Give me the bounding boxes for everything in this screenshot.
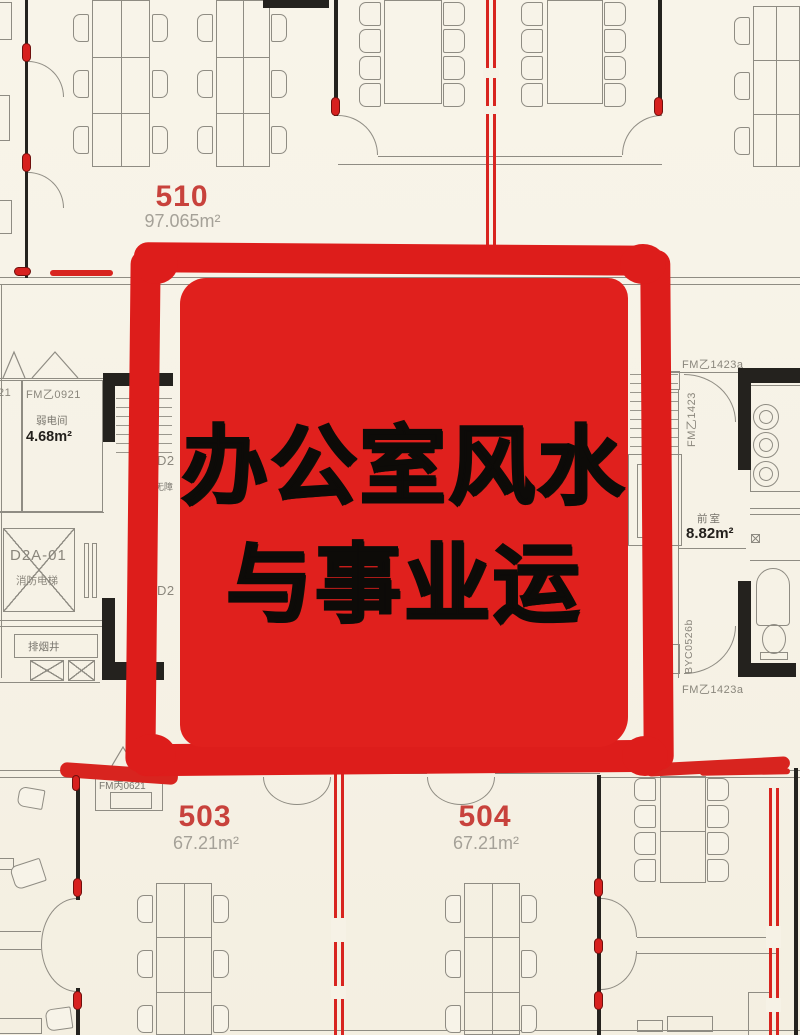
room-504-number: 504 [440, 800, 530, 834]
chair-icon [521, 1005, 537, 1033]
wall-line [378, 156, 622, 157]
chair-icon [707, 805, 729, 828]
urinal-icon [756, 568, 790, 626]
red-door-marker [22, 43, 31, 62]
chair-icon [521, 56, 543, 80]
basin-icon [759, 410, 773, 424]
stamp-border-left [125, 250, 160, 772]
chair-icon [443, 2, 465, 26]
desk-table [660, 776, 706, 883]
label-fm1423a-top: FM乙1423a [682, 356, 743, 372]
chair-icon [604, 29, 626, 53]
red-door-marker [73, 878, 82, 897]
wall-line [0, 626, 103, 627]
wall-line [0, 620, 103, 621]
door-arc [41, 898, 77, 945]
chair-icon [197, 70, 213, 98]
door-arc [297, 777, 331, 805]
chair-icon [359, 83, 381, 107]
red-brush-stroke [700, 768, 790, 776]
label-fm1423-side: FM乙1423 [683, 392, 699, 447]
chair-icon [521, 2, 543, 26]
chair-icon [16, 786, 45, 810]
plan-box [637, 1020, 663, 1032]
toilet-icon [762, 624, 786, 654]
room-510-area: 97.065m² [120, 211, 245, 232]
label-byc: BYC0526b [683, 619, 695, 674]
wall [658, 0, 662, 100]
label-elevator-name: 消防电梯 [16, 573, 58, 588]
room-503-number: 503 [160, 800, 250, 834]
door-arc [601, 898, 637, 937]
desk-table [384, 0, 442, 104]
wall-line [750, 508, 800, 509]
chair-icon [73, 126, 89, 154]
chair-icon [359, 29, 381, 53]
chair-icon [707, 832, 729, 855]
chair-icon [443, 56, 465, 80]
desk-line [243, 0, 244, 167]
chair-icon [604, 83, 626, 107]
chair-icon [445, 895, 461, 923]
chair-icon [521, 950, 537, 978]
plan-box [0, 1018, 42, 1034]
red-line-gap [766, 998, 781, 1012]
red-door-marker [331, 97, 340, 116]
desk-line [184, 883, 185, 1035]
red-line-gap [331, 918, 346, 942]
vent-symbol [30, 660, 64, 681]
room-503-area: 67.21m² [146, 833, 266, 854]
wall-line [750, 560, 800, 561]
chair-icon [271, 70, 287, 98]
plan-box [84, 543, 89, 598]
wall-line [0, 949, 41, 950]
plan-box [0, 200, 12, 234]
chair-icon [734, 127, 750, 155]
red-door-marker [73, 991, 82, 1010]
chair-icon [634, 778, 656, 801]
stamp-border-right [640, 250, 674, 770]
label-d2-upper: D2 [157, 453, 175, 468]
vent-symbol [68, 660, 95, 681]
door-arc [41, 945, 77, 992]
wall [263, 0, 329, 8]
door-triangle-icons [0, 348, 110, 380]
stamp-corner-blob [622, 736, 668, 776]
door-arc [263, 777, 297, 805]
label-smoke-shaft: 排烟井 [28, 639, 60, 654]
red-line-gap [483, 106, 499, 114]
door-arc [28, 61, 64, 97]
wall [738, 368, 751, 470]
label-fm1423a-bottom: FM乙1423a [682, 681, 743, 697]
red-traced-wall [486, 0, 496, 248]
chair-icon [137, 950, 153, 978]
chair-icon [359, 56, 381, 80]
red-line-gap [483, 68, 499, 78]
wall [25, 0, 28, 278]
wall-line [637, 953, 777, 954]
chair-icon [445, 1005, 461, 1033]
wall-line [678, 548, 746, 549]
stamp-title-line1: 办公室风水 [180, 412, 628, 522]
red-door-marker [654, 97, 663, 116]
chair-icon [73, 70, 89, 98]
door-arc [622, 115, 662, 155]
wall-line [750, 514, 800, 515]
plan-box [0, 380, 22, 512]
desk-line [776, 6, 777, 167]
label-weak-room: 弱电间 [36, 413, 68, 428]
chair-icon [604, 56, 626, 80]
elevator-shaft-symbol [3, 528, 75, 612]
chair-icon [445, 950, 461, 978]
wall [103, 373, 115, 442]
chair-icon [213, 1005, 229, 1033]
wall-line [495, 773, 600, 774]
red-door-marker [594, 878, 603, 897]
chair-icon [152, 126, 168, 154]
chair-icon [45, 1006, 74, 1031]
chair-icon [73, 14, 89, 42]
chair-icon [137, 895, 153, 923]
chair-icon [734, 17, 750, 45]
chair-icon [604, 2, 626, 26]
red-door-marker [14, 267, 31, 276]
chair-icon [734, 72, 750, 100]
chair-icon [137, 1005, 153, 1033]
label-fm0921: FM乙0921 [26, 386, 81, 402]
red-line-gap [766, 926, 781, 948]
label-partial-21: 21 [0, 387, 11, 399]
chair-icon [271, 126, 287, 154]
desk-table [547, 0, 603, 104]
wall-line [0, 931, 41, 932]
basin-icon [759, 438, 773, 452]
red-door-marker [594, 991, 603, 1010]
red-door-marker [22, 153, 31, 172]
chair-icon [213, 895, 229, 923]
door-arc [28, 172, 64, 208]
wall [738, 663, 796, 677]
wall [794, 768, 798, 1035]
stamp-border-top [134, 242, 662, 276]
chair-icon [359, 2, 381, 26]
red-wall-highlight [50, 270, 113, 276]
chair-icon [271, 14, 287, 42]
chair-icon [443, 83, 465, 107]
chair-icon [634, 859, 656, 882]
label-front-room: 前室 [697, 511, 722, 526]
basin-icon [759, 467, 773, 481]
plan-box [0, 2, 12, 40]
label-front-area: 8.82m² [686, 525, 734, 542]
wall-line [0, 682, 100, 683]
chair-icon [152, 14, 168, 42]
chair-icon [9, 858, 47, 891]
room-504-area: 67.21m² [426, 833, 546, 854]
plan-box [0, 95, 10, 141]
chair-icon [521, 29, 543, 53]
chair-icon [707, 778, 729, 801]
stamp-corner-blob [620, 244, 666, 284]
wall-line [0, 512, 104, 513]
wall-line [338, 164, 662, 165]
door-arc [338, 115, 378, 155]
plan-box [110, 792, 152, 809]
wall-line [637, 937, 777, 938]
desk-line [492, 883, 493, 1035]
plan-box [667, 1016, 713, 1032]
desk-line [121, 0, 122, 167]
label-elevator-id: D2A-01 [10, 547, 67, 564]
chair-icon [197, 126, 213, 154]
chair-icon [634, 832, 656, 855]
chair-icon [634, 805, 656, 828]
chair-icon [707, 859, 729, 882]
chair-icon [521, 83, 543, 107]
floorplan-canvas: 510 97.065m² 503 67.21m² 504 67.21m² 21 … [0, 0, 800, 1035]
chair-icon [197, 14, 213, 42]
chair-icon [443, 29, 465, 53]
stamp-title-line2: 与事业运 [180, 530, 628, 640]
room-510-number: 510 [137, 180, 227, 214]
chair-icon [521, 895, 537, 923]
stamp-corner-blob [134, 244, 178, 284]
drain-symbol [751, 534, 760, 543]
plan-box [92, 543, 97, 598]
red-door-marker [594, 938, 603, 954]
chair-icon [213, 950, 229, 978]
desk-line [660, 831, 706, 832]
wall [738, 581, 751, 676]
stamp-corner-blob [128, 734, 176, 776]
door-arc [601, 951, 637, 990]
label-d2-lower: D2 [157, 583, 175, 598]
red-line-gap [331, 986, 346, 999]
chair-icon [152, 70, 168, 98]
label-weak-area: 4.68m² [26, 429, 72, 445]
red-door-marker [72, 775, 80, 791]
